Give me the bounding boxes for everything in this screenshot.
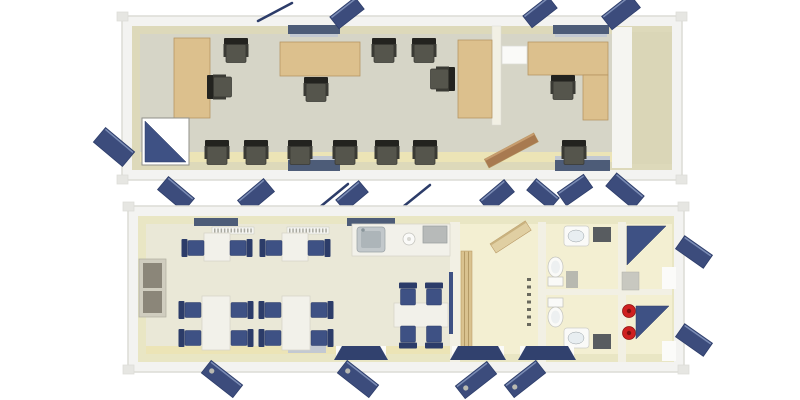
office-chair — [412, 38, 437, 63]
desk-return — [583, 75, 608, 120]
office-chair — [372, 38, 397, 63]
window-glass — [194, 218, 238, 226]
chair-armrest — [551, 81, 554, 94]
office-chair — [207, 75, 232, 100]
chair-seat — [374, 45, 394, 63]
chair-seat — [553, 82, 573, 100]
office-chair — [244, 140, 269, 165]
chair-seat — [265, 331, 281, 346]
chair-backrest — [413, 140, 437, 147]
canteen-chair — [179, 329, 202, 347]
chair-seat — [431, 69, 449, 89]
canteen-chair — [311, 329, 334, 347]
chair-seat — [266, 241, 282, 256]
desk — [280, 42, 360, 76]
chair-seat — [414, 45, 434, 63]
office-chair — [551, 75, 576, 100]
dining-table — [282, 233, 308, 261]
chair-backrest — [207, 75, 214, 99]
mirror — [593, 334, 611, 349]
chair-backrest — [425, 283, 443, 289]
chair-armrest — [436, 67, 449, 70]
fire-extinguisher-cap — [627, 331, 631, 335]
corner-fitting — [123, 202, 134, 211]
chair-seat — [401, 326, 416, 342]
chair-armrest — [227, 146, 230, 159]
chair-backrest — [328, 329, 334, 347]
entry-step — [622, 272, 639, 290]
chair-armrest — [246, 44, 249, 57]
canteen-chair — [260, 239, 283, 257]
coat-hook — [527, 293, 531, 296]
window-sill — [555, 34, 607, 37]
window-pane — [143, 263, 162, 288]
chair-backrest — [247, 239, 253, 257]
canteen-chair — [231, 329, 254, 347]
chair-armrest — [224, 44, 227, 57]
chair-seat — [231, 331, 247, 346]
floorplan-render-canvas — [0, 0, 800, 400]
coat-hook — [527, 323, 531, 326]
chair-armrest — [394, 44, 397, 57]
chair-seat — [231, 303, 247, 318]
chair-armrest — [288, 146, 291, 159]
chair-backrest — [179, 301, 185, 319]
corner-fitting — [123, 365, 134, 374]
chair-armrest — [375, 146, 378, 159]
chair-backrest — [412, 38, 436, 45]
chair-seat — [230, 241, 246, 256]
canteen-and-sanitary-container — [123, 202, 713, 399]
chair-backrest — [224, 38, 248, 45]
chair-seat — [185, 303, 201, 318]
chair-backrest — [372, 38, 396, 45]
shower-mat — [566, 271, 578, 288]
door-opening — [662, 267, 676, 289]
fire-extinguisher-cap — [627, 309, 631, 313]
chair-backrest — [328, 301, 334, 319]
chair-backrest — [288, 140, 312, 147]
chair-backrest — [551, 75, 575, 82]
chair-seat — [290, 147, 310, 165]
chair-backrest — [325, 239, 331, 257]
office-chair — [304, 77, 329, 102]
chair-armrest — [573, 81, 576, 94]
partition-wall — [618, 222, 626, 362]
dining-table — [204, 233, 230, 261]
door-threshold — [334, 346, 388, 360]
canteen-chair — [425, 283, 443, 306]
chair-backrest — [259, 301, 265, 319]
chair-backrest — [448, 67, 455, 91]
basin-bowl — [568, 230, 584, 242]
chair-backrest — [399, 283, 417, 289]
corner-fitting — [676, 175, 687, 184]
dining-table — [394, 303, 448, 327]
chair-armrest — [435, 146, 438, 159]
end-partition-wall — [612, 27, 632, 168]
desk — [174, 38, 210, 118]
office-chair — [205, 140, 230, 165]
bench-slats — [461, 251, 472, 351]
chair-seat — [306, 84, 326, 102]
window-flap — [527, 179, 560, 210]
chair-armrest — [562, 146, 565, 159]
chair-backrest — [333, 140, 357, 147]
basin-bowl — [568, 332, 584, 344]
office-chair — [431, 67, 456, 92]
office-chair — [375, 140, 400, 165]
chair-seat — [335, 147, 355, 165]
door-opening — [662, 341, 676, 361]
chair-armrest — [304, 83, 307, 96]
dining-table — [282, 296, 310, 350]
partition-wall — [546, 289, 618, 295]
chair-backrest — [248, 329, 254, 347]
toilet-cistern — [548, 277, 563, 286]
kettle-lid — [407, 237, 411, 241]
canteen-chair — [179, 301, 202, 319]
chair-armrest — [333, 146, 336, 159]
canteen-chair — [259, 301, 282, 319]
chair-seat — [185, 331, 201, 346]
chair-backrest — [244, 140, 268, 147]
chair-armrest — [372, 44, 375, 57]
coat-hook — [527, 286, 531, 289]
chair-armrest — [266, 146, 269, 159]
window-glass — [553, 25, 609, 34]
canteen-chair — [399, 283, 417, 306]
chair-seat — [207, 147, 227, 165]
chair-backrest — [248, 301, 254, 319]
coat-hook — [527, 316, 531, 319]
chair-backrest — [179, 329, 185, 347]
chair-armrest — [310, 146, 313, 159]
chair-backrest — [182, 239, 188, 257]
chair-seat — [188, 241, 204, 256]
corner-fitting — [117, 12, 128, 21]
chair-armrest — [355, 146, 358, 159]
chair-seat — [308, 241, 324, 256]
toilet-seat — [551, 311, 560, 324]
chair-armrest — [205, 146, 208, 159]
chair-backrest — [425, 343, 443, 349]
canteen-chair — [231, 301, 254, 319]
chair-backrest — [304, 77, 328, 84]
chair-backrest — [205, 140, 229, 147]
chair-backrest — [375, 140, 399, 147]
chair-armrest — [412, 44, 415, 57]
chair-seat — [246, 147, 266, 165]
office-chair — [413, 140, 438, 165]
chair-seat — [401, 289, 416, 305]
desk — [528, 42, 608, 75]
toilet-cistern — [548, 298, 563, 307]
coat-hook — [527, 278, 531, 281]
chair-armrest — [584, 146, 587, 159]
office-chair — [562, 140, 587, 165]
window-flap — [404, 185, 430, 206]
floorplan-svg — [0, 0, 800, 400]
canteen-chair — [425, 326, 443, 349]
open-plan-office-container — [93, 0, 687, 213]
coat-hook — [527, 301, 531, 304]
mirror — [593, 227, 611, 242]
door-threshold — [450, 346, 506, 360]
chair-armrest — [397, 146, 400, 159]
cabinet — [502, 46, 527, 64]
chair-armrest — [436, 89, 449, 92]
chair-seat — [226, 45, 246, 63]
canteen-chair — [308, 239, 331, 257]
window-sill — [290, 34, 338, 37]
canteen-chair — [399, 326, 417, 349]
chair-seat — [564, 147, 584, 165]
chair-seat — [427, 326, 442, 342]
end-room-floor — [632, 32, 672, 164]
chair-seat — [311, 303, 327, 318]
chair-backrest — [259, 329, 265, 347]
canteen-chair — [230, 239, 253, 257]
chair-seat — [214, 77, 232, 97]
office-chair — [333, 140, 358, 165]
chair-armrest — [326, 83, 329, 96]
chair-backrest — [562, 140, 586, 147]
office-partition-wall — [492, 26, 501, 125]
coat-hook — [527, 308, 531, 311]
toilet-seat — [551, 261, 560, 274]
corner-fitting — [676, 12, 687, 21]
chair-backrest — [260, 239, 266, 257]
chair-seat — [415, 147, 435, 165]
chair-armrest — [244, 146, 247, 159]
chair-seat — [377, 147, 397, 165]
chair-armrest — [213, 75, 226, 78]
chair-seat — [427, 289, 442, 305]
corner-fitting — [678, 365, 689, 374]
chair-armrest — [213, 97, 226, 100]
window-flap — [527, 179, 560, 210]
faucet — [361, 228, 365, 232]
corner-fitting — [678, 202, 689, 211]
microwave — [423, 226, 447, 243]
partition-wall — [538, 222, 546, 362]
corner-fitting — [117, 175, 128, 184]
chair-seat — [311, 331, 327, 346]
chair-armrest — [434, 44, 437, 57]
door-threshold — [518, 346, 576, 360]
office-chair — [288, 140, 313, 165]
canteen-chair — [311, 301, 334, 319]
chair-seat — [265, 303, 281, 318]
door-leaf-edge — [449, 272, 453, 334]
dining-table — [202, 296, 230, 350]
canteen-chair — [259, 329, 282, 347]
chair-armrest — [413, 146, 416, 159]
canteen-chair — [182, 239, 205, 257]
office-chair — [224, 38, 249, 63]
window-pane — [143, 291, 162, 313]
window-glass — [288, 25, 340, 34]
sink-basin — [361, 231, 381, 248]
chair-backrest — [399, 343, 417, 349]
desk — [458, 40, 492, 118]
